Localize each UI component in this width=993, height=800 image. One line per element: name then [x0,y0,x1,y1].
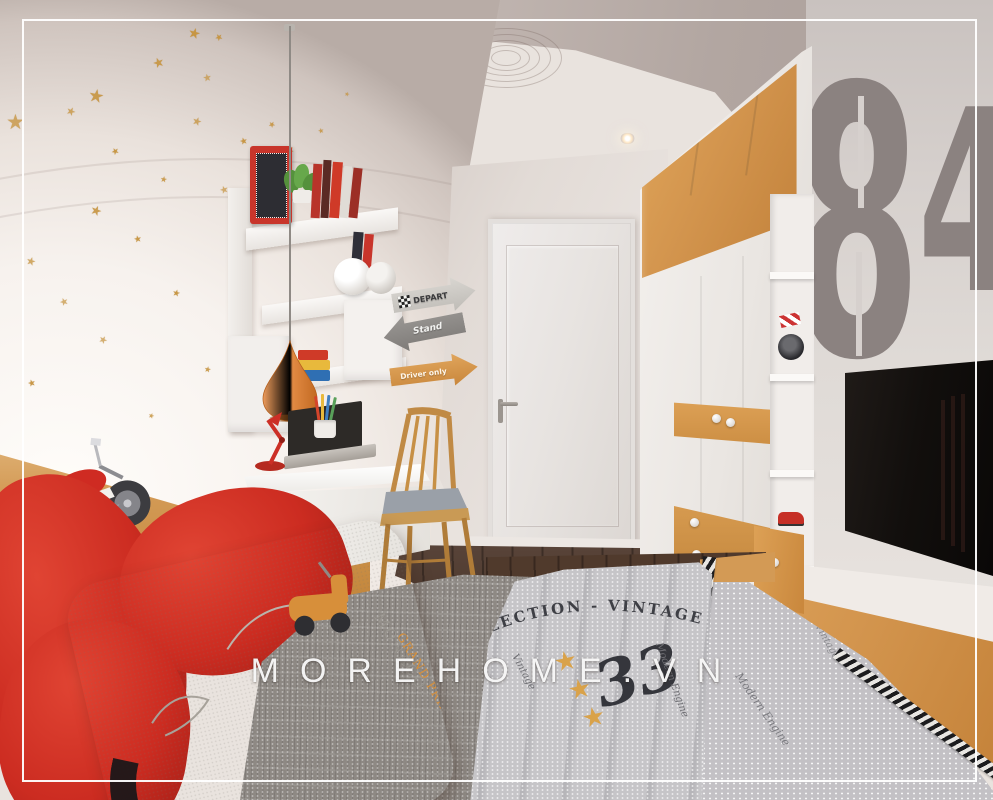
pendant-cord [289,26,291,344]
toy-wheel [778,334,804,360]
plant-pot [293,190,311,203]
drawer-knob [690,518,699,527]
bedroom-photo: ★★★★★★★★★★★★★★★★★★★★★★★★★★ 8 4 [0,0,993,800]
wardrobe-knob [712,414,721,423]
desk-lamp-icon [248,402,308,478]
stencil-gap [856,252,862,356]
star-decal-icon: ★ [27,379,37,390]
sign-stand-label: Stand [412,322,443,337]
star-decal-icon: ★ [190,115,203,129]
door-panel [506,245,619,527]
star-decal-icon: ★ [212,32,224,44]
door [488,219,635,557]
star-decal-icon: ★ [202,73,213,84]
sign-depart-label: DEPART [413,290,449,304]
star-decal-icon: ★ [96,334,109,347]
watermark: MOREHOME.VN [0,652,993,691]
star-decal-icon: ★ [64,104,78,118]
star-decal-icon: ★ [25,255,38,268]
toy-car-red [778,512,804,524]
star-decal-icon: ★ [203,365,212,374]
star-decal-icon: ★ [239,137,249,148]
lightbox-poster [256,153,287,218]
star-decal-icon: ★ [317,127,325,135]
star-decal-icon: ★ [58,297,70,310]
star-decal-icon: ★ [186,26,202,43]
stencil-gap [858,96,864,208]
tv-reflection [961,394,965,552]
tv-reflection [951,396,955,546]
star-decal-icon: ★ [171,289,181,300]
star-decal-icon: ★ [159,175,167,184]
helmet [366,262,396,294]
star-decal-icon: ★ [266,120,276,131]
star-decal-icon: ★ [87,87,106,108]
checkered-flag-icon [398,295,412,309]
door-handle [500,402,518,406]
tv-reflection [941,400,945,540]
star-decal-icon: ★ [133,235,143,245]
star-decal-icon: ★ [151,55,166,71]
star-decal-icon: ★ [88,203,104,219]
wall-number-4: 4 [918,78,993,330]
star-decal-icon: ★ [343,91,350,98]
sign-driver-label: Driver only [400,366,447,381]
pencil-holder [314,420,336,438]
star-decal-icon: ★ [6,112,25,133]
star-decal-icon: ★ [110,147,121,159]
wardrobe-knob [726,418,735,427]
